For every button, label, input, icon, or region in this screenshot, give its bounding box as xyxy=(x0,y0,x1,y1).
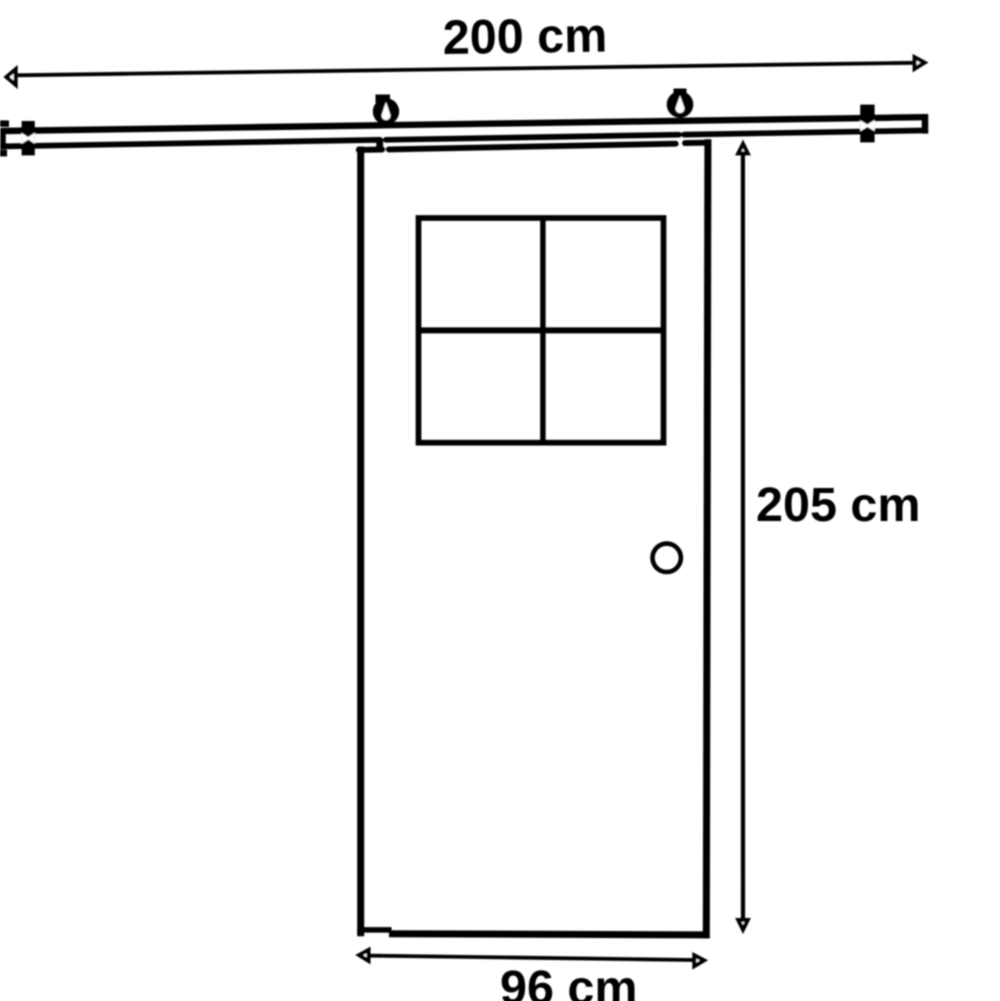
svg-text:205 cm: 205 cm xyxy=(756,478,921,532)
svg-text:96 cm: 96 cm xyxy=(500,961,638,1001)
svg-text:200 cm: 200 cm xyxy=(442,8,607,65)
